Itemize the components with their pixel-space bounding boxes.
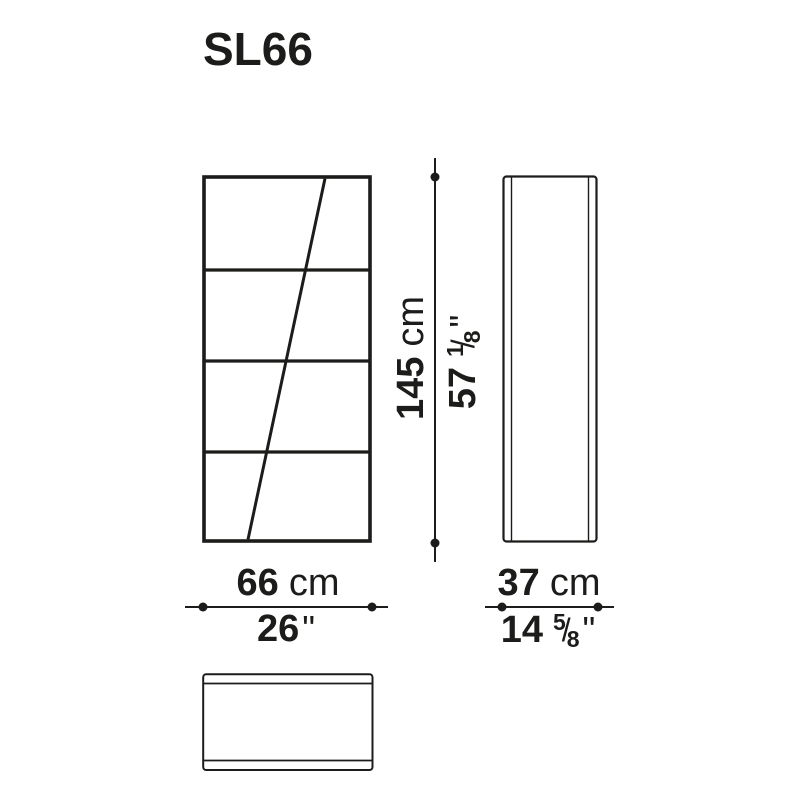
width-metric-value: 66 [237,564,279,602]
width-imperial-label: 26 " [257,610,315,648]
width-dimension-endpoint-right [368,603,377,612]
side-view-outline [504,177,597,542]
depth-metric-label: 37 cm [498,564,601,602]
height-metric-value: 145 [392,357,430,420]
top-view-drawing [202,673,374,772]
top-view-outline [203,674,372,770]
depth-inch-mark: " [582,612,595,648]
height-metric-unit: cm [392,296,430,347]
height-dimension-endpoint-top [431,173,440,182]
height-inch-mark: " [445,315,481,328]
height-metric-label: 145 cm [392,296,430,420]
depth-metric-unit: cm [550,564,601,602]
diagonal-brace-line [248,179,325,540]
product-title: SL66 [203,22,313,76]
depth-metric-value: 37 [498,564,540,602]
width-inch-mark: " [302,611,315,647]
width-imperial-whole: 26 [257,610,299,648]
depth-imperial-label: 14 5/8 " [501,611,596,649]
height-imperial-whole: 57 [444,367,482,409]
side-view-drawing [502,175,599,544]
front-view-drawing [202,175,374,545]
width-metric-unit: cm [289,564,340,602]
width-metric-label: 66 cm [237,564,340,602]
height-dimension-line [434,158,436,562]
depth-imperial-whole: 14 [501,611,543,649]
depth-imperial-fraction: 5/8 [553,611,579,649]
height-dimension-endpoint-bottom [431,539,440,548]
dimension-diagram-page: SL66 145 cm 57 1/8 " 66 cm 26 " 37 cm [0,0,800,800]
height-imperial-fraction: 1/8 [444,331,482,357]
height-imperial-label: 57 1/8 " [444,315,482,410]
width-dimension-endpoint-left [199,603,208,612]
